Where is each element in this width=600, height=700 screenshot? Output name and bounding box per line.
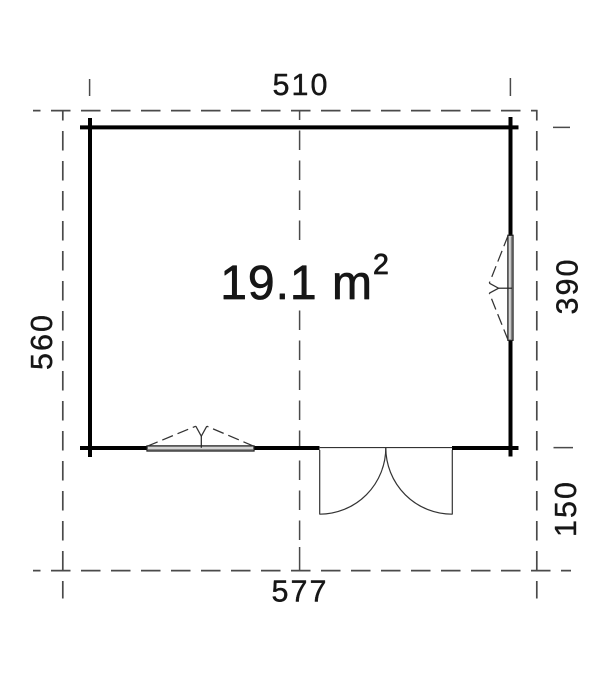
svg-text:510: 510 [273, 68, 330, 102]
svg-text:150: 150 [549, 480, 583, 537]
svg-text:19.1 m2: 19.1 m2 [220, 249, 390, 310]
svg-text:390: 390 [551, 258, 585, 315]
svg-text:577: 577 [272, 575, 329, 609]
svg-text:560: 560 [25, 313, 59, 370]
